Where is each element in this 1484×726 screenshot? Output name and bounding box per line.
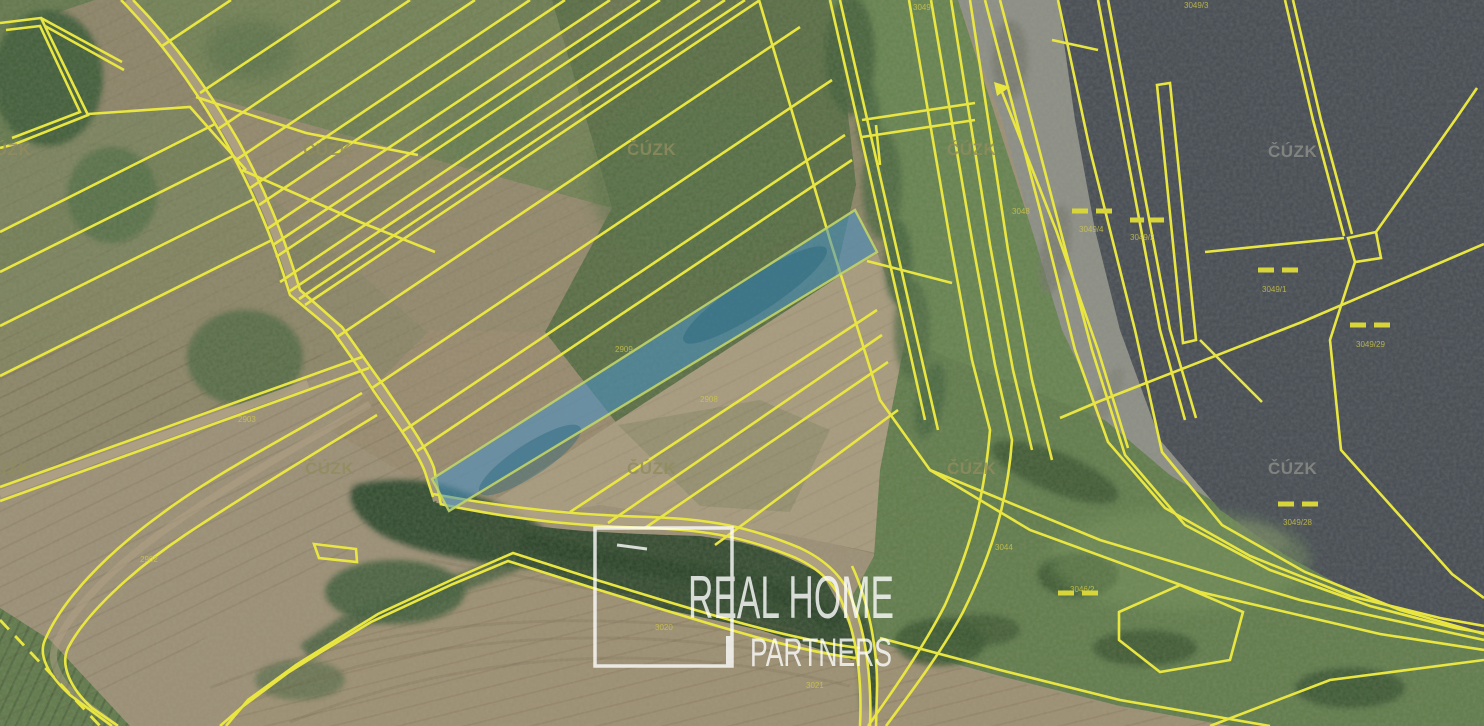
svg-text:3020: 3020	[655, 623, 673, 632]
svg-text:3049/2: 3049/2	[1130, 233, 1155, 242]
svg-text:2902: 2902	[140, 555, 158, 564]
svg-text:ČÚZK: ČÚZK	[627, 459, 676, 478]
svg-text:ČÚZK: ČÚZK	[0, 140, 31, 159]
svg-text:ČÚZK: ČÚZK	[1268, 142, 1317, 161]
svg-text:2903: 2903	[238, 415, 256, 424]
svg-text:3049/28: 3049/28	[1283, 518, 1312, 527]
svg-text:2909: 2909	[615, 345, 633, 354]
svg-text:3048: 3048	[1012, 207, 1030, 216]
svg-text:3044: 3044	[995, 543, 1013, 552]
svg-text:3049/1: 3049/1	[1262, 285, 1287, 294]
svg-text:ČÚZK: ČÚZK	[627, 140, 676, 159]
svg-text:3049/3: 3049/3	[1184, 1, 1209, 10]
svg-text:ČÚZK: ČÚZK	[0, 459, 31, 478]
svg-text:3049/29: 3049/29	[1356, 340, 1385, 349]
svg-text:PARTNERS: PARTNERS	[750, 631, 892, 675]
svg-text:REAL HOME: REAL HOME	[688, 564, 894, 631]
svg-text:ČÚZK: ČÚZK	[947, 459, 996, 478]
svg-text:3021: 3021	[806, 681, 824, 690]
svg-text:ČÚZK: ČÚZK	[947, 140, 996, 159]
svg-text:2908: 2908	[700, 395, 718, 404]
svg-text:ČÚZK: ČÚZK	[303, 140, 352, 159]
svg-text:3049: 3049	[913, 3, 931, 12]
svg-text:3049/4: 3049/4	[1079, 225, 1104, 234]
svg-text:ČÚZK: ČÚZK	[305, 459, 354, 478]
svg-text:ČÚZK: ČÚZK	[1268, 459, 1317, 478]
